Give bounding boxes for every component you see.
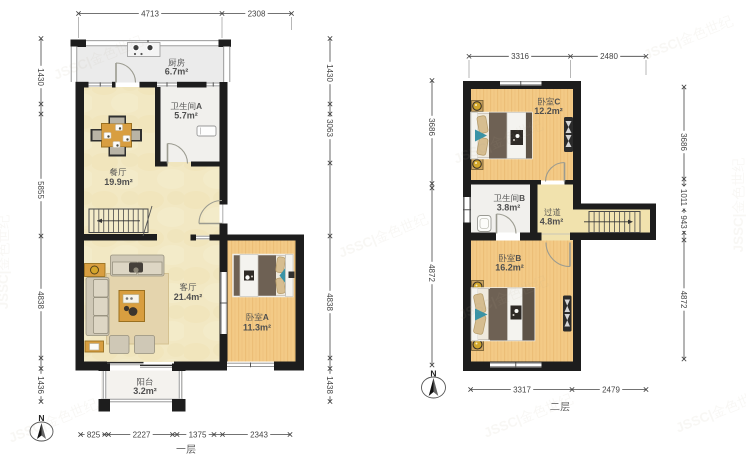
svg-text:21.4m²: 21.4m² bbox=[174, 292, 203, 302]
svg-text:5855: 5855 bbox=[36, 181, 45, 199]
svg-text:1430: 1430 bbox=[325, 64, 334, 82]
svg-text:5.7m²: 5.7m² bbox=[174, 111, 198, 121]
svg-text:N: N bbox=[430, 369, 436, 379]
svg-text:19.9m²: 19.9m² bbox=[104, 177, 133, 187]
svg-text:2479: 2479 bbox=[602, 385, 620, 394]
svg-text:3316: 3316 bbox=[511, 52, 529, 61]
svg-text:943: 943 bbox=[679, 215, 688, 229]
svg-text:12.2m²: 12.2m² bbox=[534, 106, 563, 116]
svg-text:4838: 4838 bbox=[325, 293, 334, 311]
svg-text:JSSC|: JSSC| bbox=[0, 271, 11, 310]
svg-text:1438: 1438 bbox=[325, 376, 334, 394]
svg-text:6.7m²: 6.7m² bbox=[165, 67, 189, 77]
svg-text:3317: 3317 bbox=[513, 385, 531, 394]
svg-text:2480: 2480 bbox=[600, 52, 618, 61]
svg-text:2343: 2343 bbox=[250, 430, 268, 439]
svg-text:2308: 2308 bbox=[248, 9, 266, 18]
svg-text:4872: 4872 bbox=[679, 291, 688, 309]
svg-text:1375: 1375 bbox=[189, 430, 207, 439]
svg-text:1436: 1436 bbox=[36, 376, 45, 394]
svg-text:1430: 1430 bbox=[36, 68, 45, 86]
svg-text:4838: 4838 bbox=[36, 291, 45, 309]
svg-text:16.2m²: 16.2m² bbox=[495, 263, 524, 273]
svg-text:1011: 1011 bbox=[679, 189, 688, 207]
svg-text:A: A bbox=[263, 313, 269, 322]
svg-text:3686: 3686 bbox=[427, 118, 436, 136]
svg-text:2227: 2227 bbox=[133, 430, 151, 439]
svg-text:825: 825 bbox=[87, 430, 101, 439]
svg-text:4.8m²: 4.8m² bbox=[540, 217, 564, 227]
svg-text:3.8m²: 3.8m² bbox=[497, 203, 521, 213]
svg-text:3.2m²: 3.2m² bbox=[133, 386, 157, 396]
svg-text:4872: 4872 bbox=[427, 264, 436, 282]
svg-text:JSSC|: JSSC| bbox=[731, 214, 746, 253]
svg-text:3686: 3686 bbox=[679, 133, 688, 151]
svg-text:11.3m²: 11.3m² bbox=[243, 323, 271, 333]
svg-text:3063: 3063 bbox=[325, 119, 334, 137]
svg-text:4713: 4713 bbox=[141, 9, 159, 18]
